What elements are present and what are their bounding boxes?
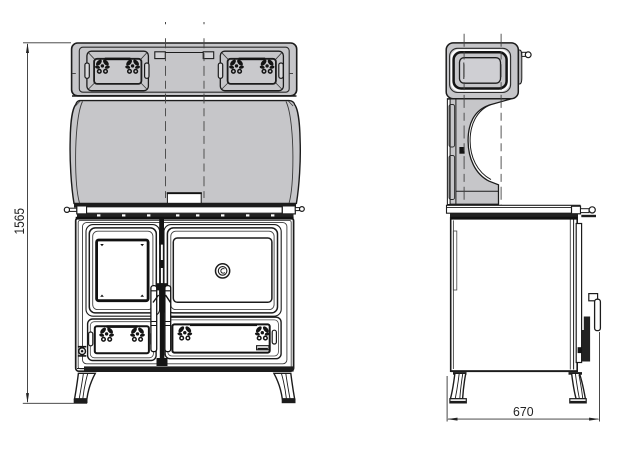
svg-text:670: 670 bbox=[513, 404, 534, 419]
svg-text:1565: 1565 bbox=[11, 208, 27, 235]
